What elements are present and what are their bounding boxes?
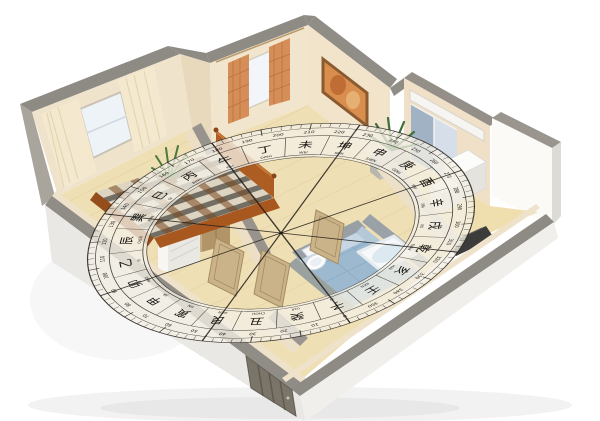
compass-mountain-char: 辰 <box>117 236 136 245</box>
compass-mountain-char: 丑 <box>248 316 265 326</box>
orange-curtain-left <box>228 54 249 124</box>
compass-degree-label: 210 <box>303 130 315 135</box>
apartment-svg: 0102030405060708090100110120130140150160… <box>0 0 600 421</box>
wall-end-edge <box>552 142 561 226</box>
compass-mountain-char: 未 <box>297 140 314 150</box>
orange-curtain-right <box>269 38 290 106</box>
scene-3d-apartment-render: 0102030405060708090100110120130140150160… <box>0 0 600 421</box>
painting-art <box>330 75 346 95</box>
compass-mountain-char: 戌 <box>425 221 444 230</box>
bed-post <box>214 128 219 133</box>
door-knob <box>287 397 290 400</box>
compass-degree-label: 30 <box>249 331 258 336</box>
compass-mountain-pinyin: WEI <box>299 151 308 154</box>
compass-degree-label: 290 <box>455 203 463 210</box>
bed-post <box>272 174 277 179</box>
compass-degree-label: 110 <box>99 255 107 262</box>
painting-art <box>346 91 360 109</box>
living-window <box>247 51 270 109</box>
